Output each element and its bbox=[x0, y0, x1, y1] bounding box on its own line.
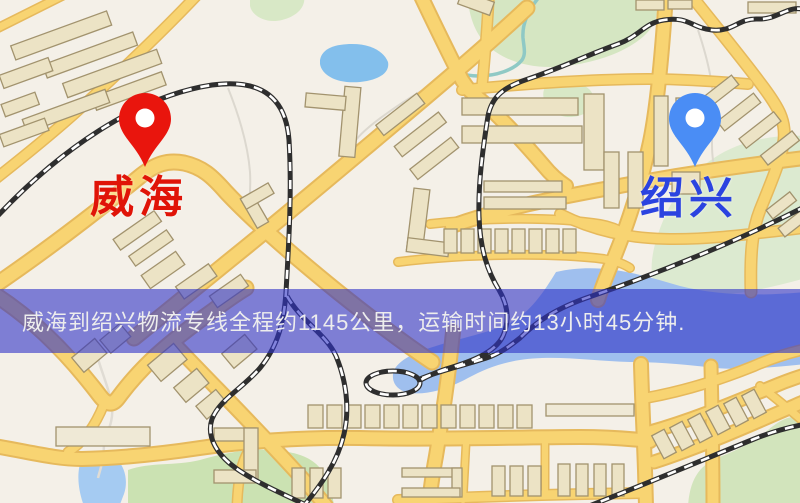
map-container: 威海 绍兴 威海到绍兴物流专线全程约1145公里，运输时间约13小时45分钟. bbox=[0, 0, 800, 503]
route-info-banner: 威海到绍兴物流专线全程约1145公里，运输时间约13小时45分钟. bbox=[0, 289, 800, 353]
destination-city-label: 绍兴 bbox=[640, 177, 738, 221]
origin-city-label: 威海 bbox=[90, 176, 188, 220]
destination-pin-hole bbox=[686, 109, 705, 128]
map-canvas[interactable] bbox=[0, 0, 800, 503]
origin-pin-hole bbox=[136, 109, 155, 128]
route-info-text: 威海到绍兴物流专线全程约1145公里，运输时间约13小时45分钟. bbox=[22, 305, 685, 337]
